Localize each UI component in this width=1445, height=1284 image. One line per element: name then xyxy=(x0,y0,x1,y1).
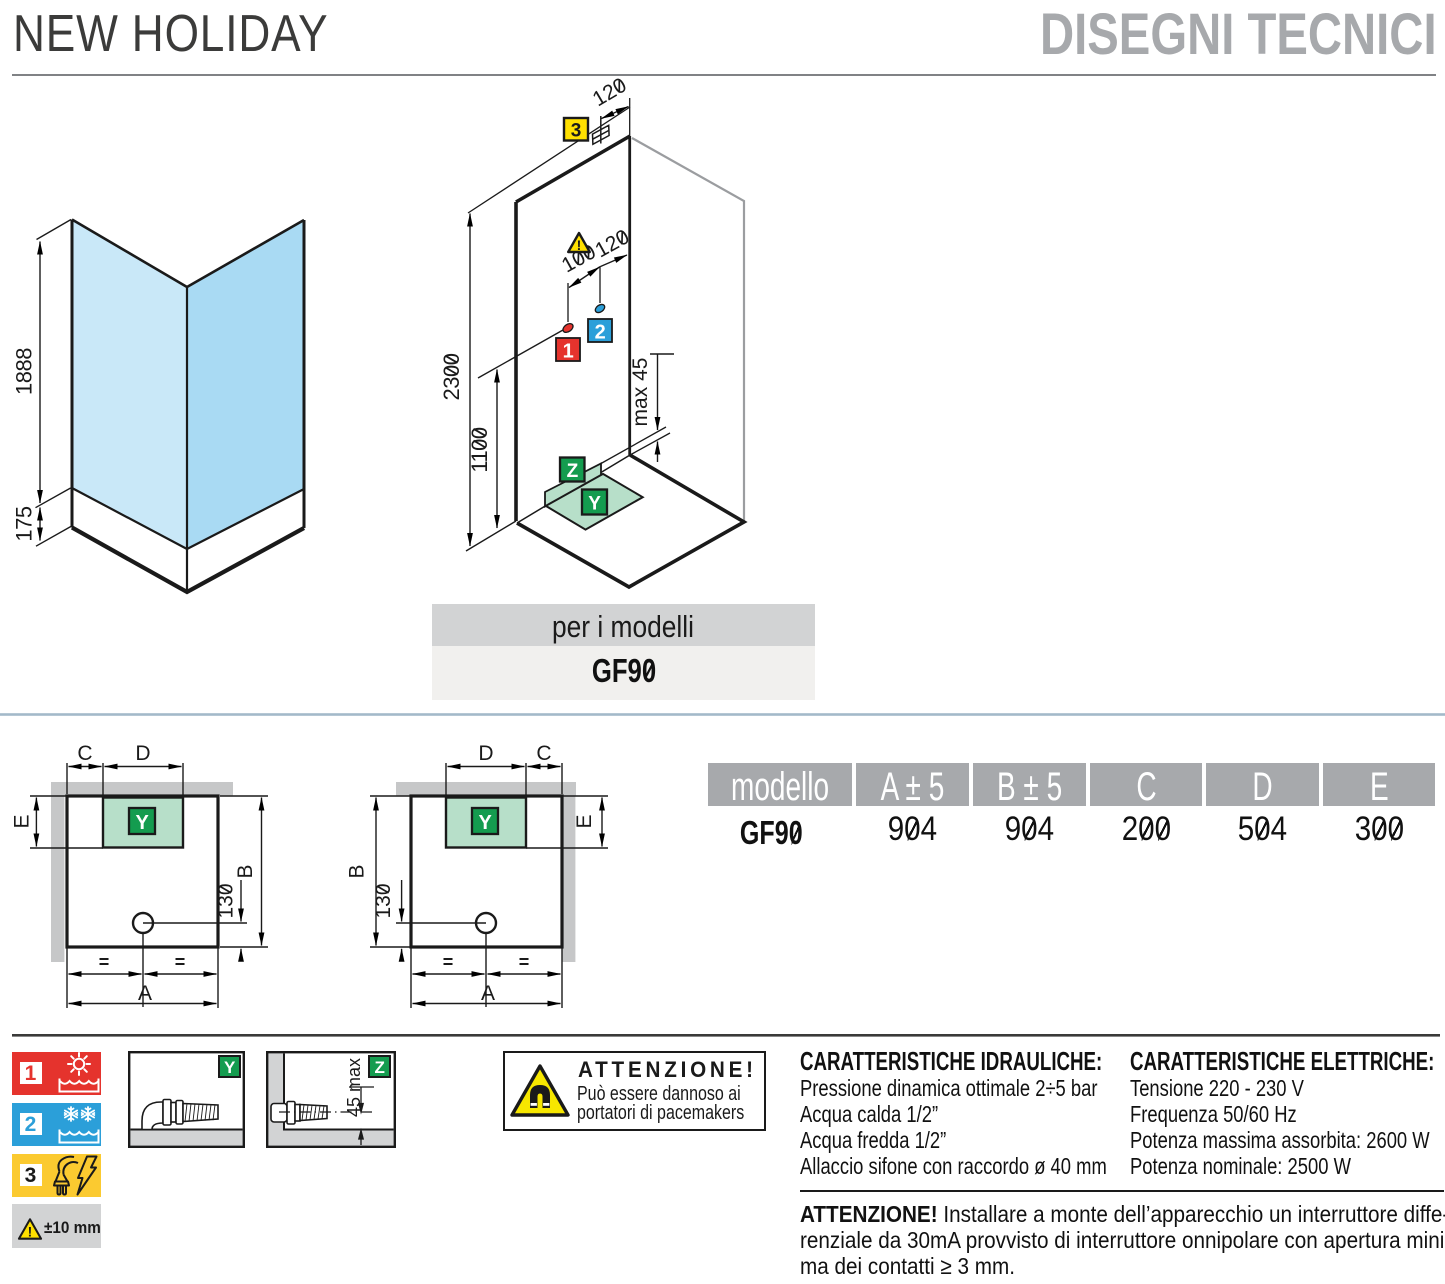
svg-text:Z: Z xyxy=(567,461,579,482)
svg-text:B: B xyxy=(234,864,257,878)
svg-text:per i modelli: per i modelli xyxy=(552,610,694,644)
svg-text:D: D xyxy=(135,742,150,765)
svg-text:175: 175 xyxy=(12,506,37,541)
svg-text:1: 1 xyxy=(563,341,574,363)
svg-text:=: = xyxy=(175,952,186,972)
svg-text:GF90: GF90 xyxy=(592,653,656,690)
svg-text:45 max: 45 max xyxy=(344,1058,364,1117)
svg-text:D: D xyxy=(478,742,493,765)
svg-text:Z: Z xyxy=(375,1058,385,1077)
svg-text:E: E xyxy=(11,814,34,828)
svg-text:120: 120 xyxy=(589,74,631,112)
svg-text:2300: 2300 xyxy=(439,353,464,400)
svg-text:Y: Y xyxy=(224,1058,236,1077)
svg-text:130: 130 xyxy=(215,883,238,918)
svg-text:Y: Y xyxy=(588,494,601,515)
svg-text:C: C xyxy=(536,742,551,765)
svg-text:!: ! xyxy=(577,237,582,253)
svg-text:=: = xyxy=(443,952,454,972)
svg-text:A: A xyxy=(138,982,152,1005)
svg-text:1888: 1888 xyxy=(12,348,37,395)
svg-text:Y: Y xyxy=(479,812,493,834)
svg-text:2: 2 xyxy=(595,322,606,344)
svg-text:E: E xyxy=(573,814,596,828)
svg-text:Y: Y xyxy=(136,812,150,834)
svg-text:=: = xyxy=(519,952,530,972)
svg-text:A: A xyxy=(481,982,495,1005)
svg-text:B: B xyxy=(346,864,369,878)
svg-text:1100: 1100 xyxy=(467,427,492,473)
svg-text:C: C xyxy=(77,742,92,765)
svg-text:3: 3 xyxy=(571,121,582,142)
svg-text:=: = xyxy=(99,952,110,972)
svg-text:!: ! xyxy=(28,1223,33,1239)
svg-text:130: 130 xyxy=(372,883,395,918)
svg-text:max 45: max 45 xyxy=(629,358,652,427)
